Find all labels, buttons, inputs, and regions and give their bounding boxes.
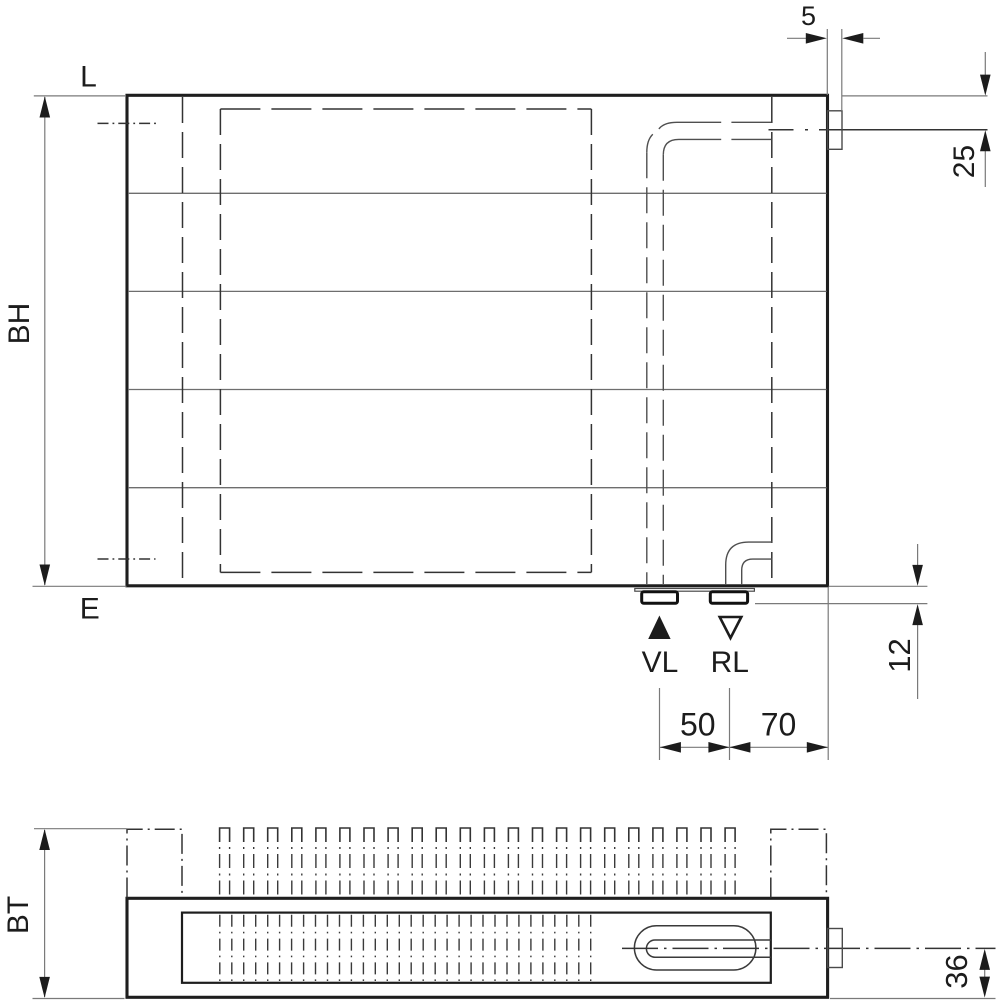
svg-text:12: 12 — [882, 638, 917, 672]
svg-text:BT: BT — [2, 896, 35, 934]
svg-text:25: 25 — [948, 145, 981, 178]
svg-text:BH: BH — [3, 303, 36, 345]
svg-text:70: 70 — [761, 707, 797, 743]
svg-text:RL: RL — [711, 646, 749, 679]
svg-text:5: 5 — [801, 1, 816, 31]
svg-text:36: 36 — [939, 954, 974, 988]
svg-text:E: E — [80, 593, 100, 626]
svg-text:L: L — [80, 61, 97, 94]
svg-text:50: 50 — [680, 707, 716, 743]
svg-text:VL: VL — [642, 646, 679, 679]
